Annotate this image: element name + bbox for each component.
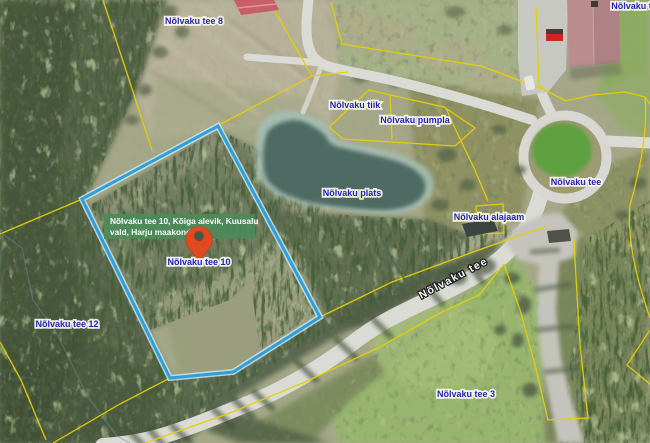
svg-text:vald, Harju maakond: vald, Harju maakond: [110, 227, 191, 237]
svg-text:Nõlvaku alajaam: Nõlvaku alajaam: [454, 212, 525, 222]
svg-text:Nõlvaku tee 8: Nõlvaku tee 8: [165, 16, 223, 26]
svg-text:Nõlvaku tiik: Nõlvaku tiik: [330, 100, 382, 110]
svg-text:Nõlvaku tee 12: Nõlvaku tee 12: [35, 319, 98, 329]
svg-text:Nõlvaku ts: Nõlvaku ts: [611, 1, 650, 11]
svg-text:Nõlvaku tee 3: Nõlvaku tee 3: [437, 389, 495, 399]
svg-text:Nõlvaku tee 10: Nõlvaku tee 10: [167, 257, 230, 267]
svg-text:Nõlvaku pumpla: Nõlvaku pumpla: [380, 115, 451, 125]
svg-text:Nõlvaku plats: Nõlvaku plats: [323, 188, 382, 198]
svg-text:Nõlvaku tee 10, Kõiga alevik,: Nõlvaku tee 10, Kõiga alevik, Kuusalu: [110, 216, 258, 226]
svg-text:Nõlvaku tee: Nõlvaku tee: [551, 177, 602, 187]
